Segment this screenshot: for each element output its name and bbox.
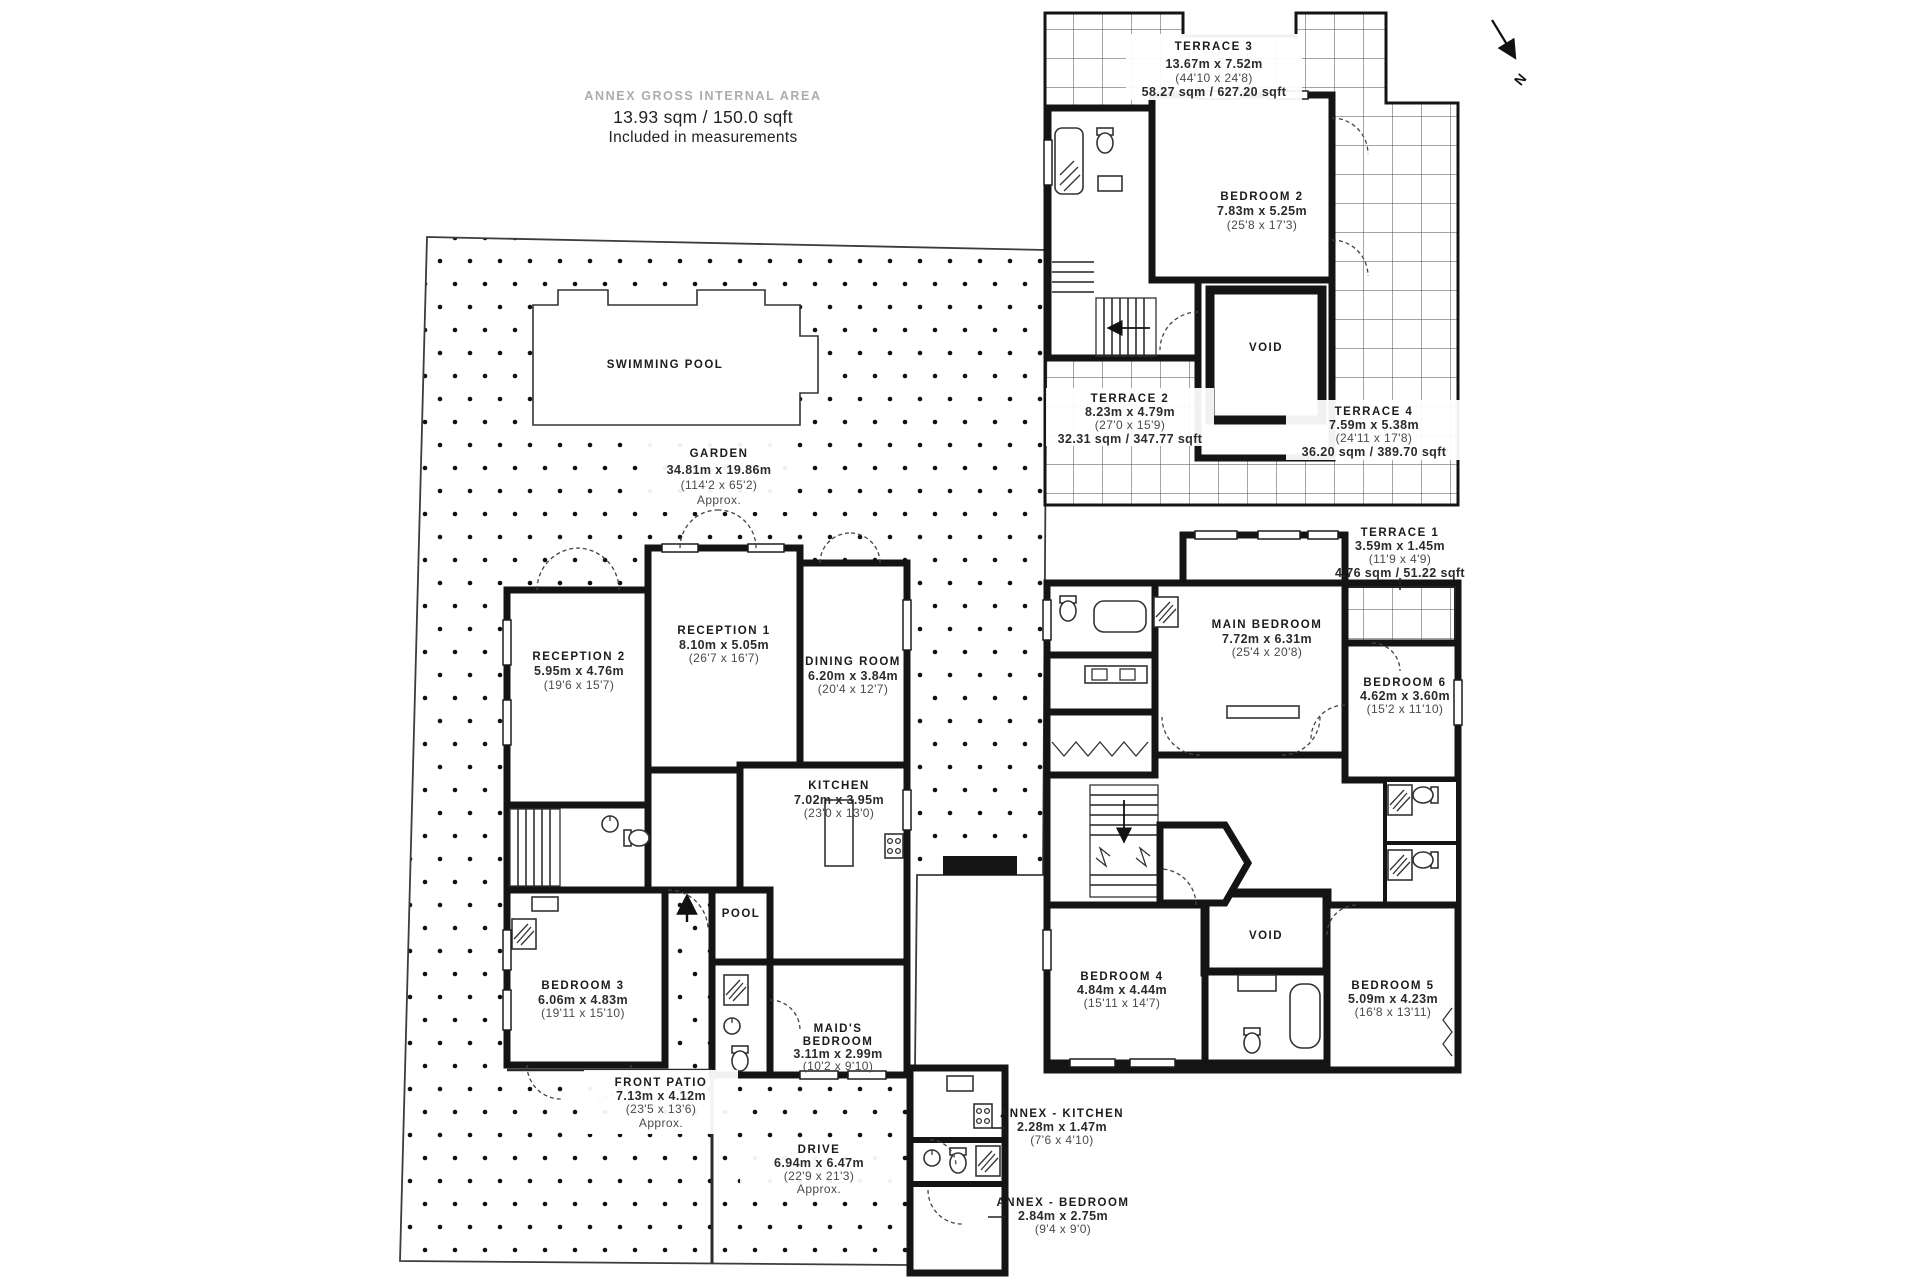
garden-name: GARDEN bbox=[690, 448, 749, 460]
bedroom6-label: BEDROOM 6 4.62m x 3.60m (15'2 x 11'10) bbox=[1360, 677, 1450, 716]
garden-note: Approx. bbox=[697, 493, 741, 507]
maid-name1: MAID'S bbox=[814, 1023, 863, 1035]
kitchen-name: KITCHEN bbox=[808, 780, 870, 792]
main-bedroom-dims-ft: (25'4 x 20'8) bbox=[1232, 645, 1303, 659]
dining-name: DINING ROOM bbox=[805, 656, 901, 668]
first-floor-plan: TERRACE 3 13.67m x 7.52m (44'10 x 24'8) … bbox=[1044, 13, 1462, 505]
bedroom5-name: BEDROOM 5 bbox=[1351, 980, 1434, 992]
bedroom2-label: BEDROOM 2 7.83m x 5.25m (25'8 x 17'3) bbox=[1217, 191, 1307, 232]
terrace2-area: 32.31 sqm / 347.77 sqft bbox=[1058, 432, 1203, 446]
bedroom6-name: BEDROOM 6 bbox=[1363, 677, 1446, 689]
main-bedroom-bed bbox=[1227, 706, 1299, 718]
terrace3-area: 58.27 sqm / 627.20 sqft bbox=[1142, 85, 1287, 99]
terrace3-dims-m: 13.67m x 7.52m bbox=[1165, 57, 1262, 71]
room-bedroom-3 bbox=[507, 890, 665, 1065]
shower1-toilet-icon bbox=[1413, 787, 1438, 803]
annex-kitchen-dims-ft: (7'6 x 4'10) bbox=[1030, 1133, 1093, 1147]
f2-void-bath-vanity bbox=[1238, 975, 1276, 991]
kitchen-stove-icon bbox=[885, 834, 903, 858]
annex-bedroom-name: ANNEX - BEDROOM bbox=[996, 1197, 1129, 1209]
f1-toilet-icon bbox=[1097, 128, 1113, 153]
maid-toilet-icon bbox=[732, 1046, 748, 1071]
terrace1-label: TERRACE 1 3.59m x 1.45m (11'9 x 4'9) 4.7… bbox=[1335, 527, 1465, 580]
bedroom4-name: BEDROOM 4 bbox=[1080, 971, 1163, 983]
bedroom2-name: BEDROOM 2 bbox=[1220, 191, 1303, 203]
bed3-bath-sink-icon bbox=[532, 897, 558, 911]
room-reception-2 bbox=[507, 590, 648, 805]
patio-note: Approx. bbox=[639, 1116, 683, 1130]
patio-dims-m: 7.13m x 4.12m bbox=[616, 1089, 706, 1103]
bedroom5-dims-m: 5.09m x 4.23m bbox=[1348, 992, 1438, 1006]
bed3-shower-icon bbox=[512, 919, 536, 949]
terrace2-name: TERRACE 2 bbox=[1091, 393, 1170, 405]
pool-room-label: POOL bbox=[722, 908, 761, 920]
swimming-pool bbox=[533, 290, 818, 425]
annex-kitchen-label: ANNEX - KITCHEN 2.28m x 1.47m (7'6 x 4'1… bbox=[1000, 1108, 1124, 1147]
f2-void-toilet-icon bbox=[1244, 1028, 1260, 1053]
reception2-dims-m: 5.95m x 4.76m bbox=[534, 664, 624, 678]
terrace1-area: 4.76 sqm / 51.22 sqft bbox=[1335, 566, 1465, 580]
annex-toilet-icon bbox=[950, 1148, 966, 1173]
kitchen-dims-m: 7.02m x 3.95m bbox=[794, 793, 884, 807]
swimming-pool-label: SWIMMING POOL bbox=[607, 359, 724, 371]
f1-bedroom2-block bbox=[1152, 95, 1332, 280]
bedroom4-label: BEDROOM 4 4.84m x 4.44m (15'11 x 14'7) bbox=[1077, 971, 1167, 1010]
bedroom4-dims-m: 4.84m x 4.44m bbox=[1077, 983, 1167, 997]
terrace4-dims-ft: (24'11 x 17'8) bbox=[1336, 431, 1413, 445]
bedroom3-dims-ft: (19'11 x 15'10) bbox=[541, 1006, 625, 1020]
annex-area-note: Included in measurements bbox=[609, 129, 798, 146]
terrace1-dims-m: 3.59m x 1.45m bbox=[1355, 539, 1445, 553]
reception1-dims-m: 8.10m x 5.05m bbox=[679, 638, 769, 652]
room-hall-stairs bbox=[507, 805, 648, 890]
bedroom5-dims-ft: (16'8 x 13'11) bbox=[1355, 1005, 1432, 1019]
north-arrow-icon: N bbox=[1492, 20, 1530, 88]
north-label: N bbox=[1511, 70, 1530, 88]
annex-kitchen-dims-m: 2.28m x 1.47m bbox=[1017, 1120, 1107, 1134]
annex-stove-icon bbox=[974, 1104, 992, 1128]
annex: ANNEX - KITCHEN 2.28m x 1.47m (7'6 x 4'1… bbox=[910, 1068, 1130, 1273]
maid-dims-ft: (10'2 x 9'10) bbox=[803, 1059, 874, 1073]
bedroom2-dims-m: 7.83m x 5.25m bbox=[1217, 204, 1307, 218]
terrace1-name: TERRACE 1 bbox=[1361, 527, 1440, 539]
bedroom5-label: BEDROOM 5 5.09m x 4.23m (16'8 x 13'11) bbox=[1348, 980, 1438, 1019]
annex-bath-sink-icon bbox=[924, 1150, 940, 1166]
shower2-toilet-icon bbox=[1413, 852, 1438, 868]
drive-dims-m: 6.94m x 6.47m bbox=[774, 1156, 864, 1170]
annex-bedroom-label: ANNEX - BEDROOM 2.84m x 2.75m (9'4 x 9'0… bbox=[996, 1197, 1129, 1236]
dining-dims-ft: (20'4 x 12'7) bbox=[818, 682, 889, 696]
bedroom3-dims-m: 6.06m x 4.83m bbox=[538, 993, 628, 1007]
f2-toilet-icon bbox=[1060, 596, 1076, 621]
maid-sink-icon bbox=[724, 1018, 740, 1034]
bedroom3-name: BEDROOM 3 bbox=[541, 980, 624, 992]
drive-dims-ft: (22'9 x 21'3) bbox=[784, 1169, 855, 1183]
f2-void-label: VOID bbox=[1249, 930, 1283, 942]
terrace3-name: TERRACE 3 bbox=[1175, 41, 1254, 53]
terrace1-dims-ft: (11'9 x 4'9) bbox=[1369, 552, 1432, 566]
patio-dims-ft: (23'5 x 13'6) bbox=[626, 1102, 697, 1116]
f2-void-bathtub-icon bbox=[1290, 984, 1320, 1048]
patio-name: FRONT PATIO bbox=[615, 1077, 708, 1089]
reception1-name: RECEPTION 1 bbox=[677, 625, 770, 637]
main-bedroom-dims-m: 7.72m x 6.31m bbox=[1222, 632, 1312, 646]
terrace3-dims-ft: (44'10 x 24'8) bbox=[1175, 71, 1253, 85]
annex-area-header: ANNEX GROSS INTERNAL AREA 13.93 sqm / 15… bbox=[584, 89, 821, 146]
garden-wall-stub bbox=[943, 856, 1017, 875]
f1-sink-icon bbox=[1098, 176, 1122, 191]
f2-shower-icon bbox=[1154, 597, 1178, 627]
shower1-icon bbox=[1388, 785, 1412, 815]
annex-bedroom-dims-ft: (9'4 x 9'0) bbox=[1035, 1222, 1091, 1236]
f1-bathtub-icon bbox=[1055, 128, 1083, 194]
reception2-name: RECEPTION 2 bbox=[532, 651, 625, 663]
bedroom2-dims-ft: (25'8 x 17'3) bbox=[1227, 218, 1298, 232]
garden-dims-ft: (114'2 x 65'2) bbox=[681, 478, 758, 492]
terrace2-dims-ft: (27'0 x 15'9) bbox=[1095, 418, 1166, 432]
drive-note: Approx. bbox=[797, 1182, 841, 1196]
annex-shower-icon bbox=[976, 1146, 1000, 1176]
maid-shower-icon bbox=[724, 975, 748, 1005]
bedroom4-dims-ft: (15'11 x 14'7) bbox=[1084, 996, 1161, 1010]
room-pool bbox=[712, 890, 770, 962]
garden-dims-m: 34.81m x 19.86m bbox=[667, 463, 772, 477]
annex-area-value: 13.93 sqm / 150.0 sqft bbox=[613, 107, 793, 127]
ground-floor-plan: SWIMMING POOL GARDEN 34.81m x 19.86m (11… bbox=[400, 237, 1130, 1273]
floorplan-canvas: ANNEX GROSS INTERNAL AREA 13.93 sqm / 15… bbox=[0, 0, 1920, 1280]
bedroom6-dims-ft: (15'2 x 11'10) bbox=[1367, 702, 1444, 716]
terrace4-name: TERRACE 4 bbox=[1335, 406, 1414, 418]
terrace2-dims-m: 8.23m x 4.79m bbox=[1085, 405, 1175, 419]
annex-sink-icon bbox=[947, 1076, 973, 1091]
bedroom6-dims-m: 4.62m x 3.60m bbox=[1360, 689, 1450, 703]
second-floor-plan: TERRACE 1 3.59m x 1.45m (11'9 x 4'9) 4.7… bbox=[1043, 527, 1465, 1070]
terrace4-dims-m: 7.59m x 5.38m bbox=[1329, 418, 1419, 432]
terrace1-grid bbox=[1334, 587, 1455, 643]
shower2-icon bbox=[1388, 850, 1412, 880]
room-main-bedroom bbox=[1155, 583, 1345, 755]
reception2-dims-ft: (19'6 x 15'7) bbox=[544, 678, 615, 692]
wc-toilet-icon bbox=[624, 830, 649, 846]
dining-dims-m: 6.20m x 3.84m bbox=[808, 669, 898, 683]
terrace4-area: 36.20 sqm / 389.70 sqft bbox=[1302, 445, 1447, 459]
kitchen-dims-ft: (23'0 x 13'0) bbox=[804, 806, 875, 820]
f2-bathtub-icon bbox=[1094, 601, 1146, 632]
main-bedroom-name: MAIN BEDROOM bbox=[1212, 619, 1323, 631]
room-hall-corridor bbox=[648, 770, 740, 890]
wc-sink-icon bbox=[602, 816, 618, 832]
drive-name: DRIVE bbox=[798, 1144, 841, 1156]
annex-kitchen-name: ANNEX - KITCHEN bbox=[1000, 1108, 1124, 1120]
annex-area-label: ANNEX GROSS INTERNAL AREA bbox=[584, 89, 821, 103]
annex-bedroom-dims-m: 2.84m x 2.75m bbox=[1018, 1209, 1108, 1223]
reception1-dims-ft: (26'7 x 16'7) bbox=[689, 651, 760, 665]
stair-landing bbox=[1160, 825, 1248, 903]
f1-void-label: VOID bbox=[1249, 342, 1283, 354]
